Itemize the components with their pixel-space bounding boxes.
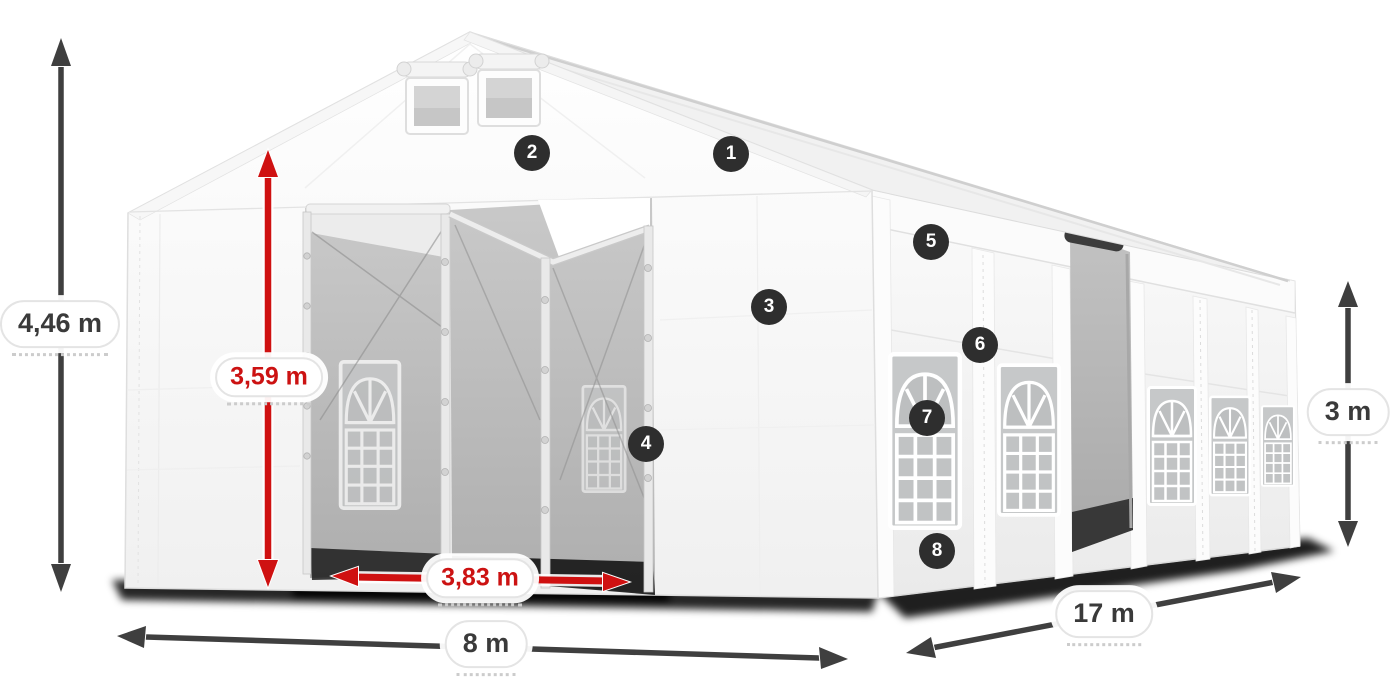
feature-badge-8[interactable]: 8 — [919, 533, 955, 569]
feature-badge-5[interactable]: 5 — [913, 224, 949, 260]
feature-badge-6[interactable]: 6 — [962, 327, 998, 363]
gable-vent-left — [397, 62, 477, 134]
feature-badge-4[interactable]: 4 — [628, 426, 664, 462]
side-height-label: 3 m — [1307, 388, 1390, 436]
feature-badge-2[interactable]: 2 — [514, 135, 550, 171]
feature-badge-7[interactable]: 7 — [909, 400, 945, 436]
side-window — [890, 354, 960, 528]
entrance-height-label: 3,59 m — [215, 357, 323, 397]
entrance-opening-left — [303, 204, 450, 580]
side-window — [999, 365, 1059, 515]
feature-badge-1[interactable]: 1 — [713, 136, 749, 172]
feature-badge-3[interactable]: 3 — [751, 289, 787, 325]
side-window — [1262, 406, 1294, 486]
width-label: 8 m — [445, 620, 528, 668]
side-door-opening — [1063, 226, 1133, 552]
entrance-width-label: 3,83 m — [426, 558, 534, 598]
tent-dimension-diagram: 4,46 m 3,59 m 3,83 m 8 m 17 m 3 m 1 2 3 … — [0, 0, 1400, 700]
length-label: 17 m — [1055, 590, 1153, 638]
side-window — [1149, 388, 1196, 505]
side-window — [1210, 397, 1249, 495]
entrance-opening-right — [450, 198, 655, 595]
tent-illustration — [0, 0, 1400, 700]
gable-vent-right — [469, 54, 549, 126]
total-height-label: 4,46 m — [0, 300, 120, 348]
